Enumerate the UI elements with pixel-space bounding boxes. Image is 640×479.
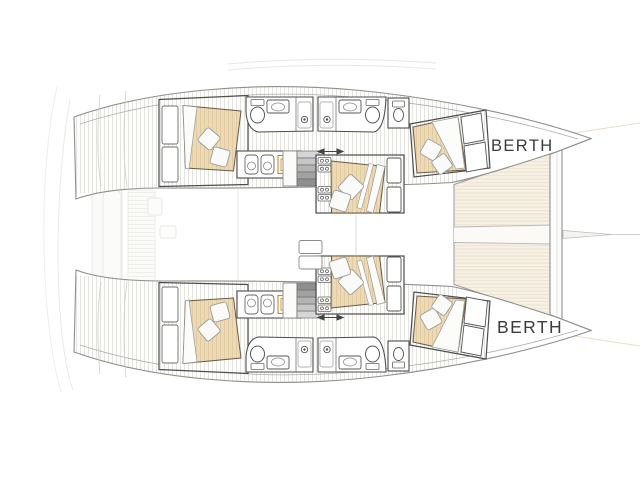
mid-cabin bbox=[316, 155, 404, 213]
companionway-step-2 bbox=[299, 256, 322, 269]
boom-line-2 bbox=[228, 65, 436, 70]
companionway-step-1 bbox=[299, 241, 322, 254]
berth-label-port: BERTH bbox=[491, 137, 554, 155]
rig-line-starboard bbox=[574, 336, 640, 346]
shower-drain-dot bbox=[303, 118, 305, 120]
shelf-drawer-2 bbox=[318, 166, 331, 173]
cockpit-table bbox=[148, 198, 162, 215]
cockpit-seat bbox=[160, 226, 176, 238]
staircase bbox=[283, 151, 319, 186]
forward-cabin-side-rect-2 bbox=[464, 142, 488, 172]
shelf-drawer-4 bbox=[318, 195, 331, 202]
bowsprit bbox=[563, 231, 612, 239]
forward-heads bbox=[318, 97, 386, 132]
toilet-icon bbox=[366, 107, 380, 123]
aft-cabin-bench-1 bbox=[162, 106, 178, 144]
aft-cabin-pillow-2 bbox=[210, 147, 231, 168]
stern-platform-inner bbox=[58, 99, 73, 390]
aft-cabin bbox=[159, 96, 248, 187]
companionway-steps bbox=[299, 241, 322, 270]
toilet-tank-icon bbox=[366, 100, 379, 106]
mid-cabin-side-rect-1 bbox=[387, 158, 401, 183]
toilet-icon bbox=[394, 109, 404, 122]
forward-wc-room bbox=[388, 98, 409, 128]
floor-plan-canvas: BERTH BERTH bbox=[0, 0, 640, 479]
shower-drain-dot bbox=[326, 118, 328, 120]
catamaran-floor-plan: BERTH BERTH bbox=[0, 0, 640, 479]
shelf-drawer-3 bbox=[318, 187, 331, 194]
forward-cabin-side-rect-1 bbox=[461, 113, 484, 144]
shelf-drawer-1 bbox=[318, 158, 331, 165]
toilet-icon bbox=[251, 107, 265, 123]
toilet-tank-icon bbox=[393, 101, 405, 107]
rig-line-port bbox=[574, 123, 640, 133]
mid-cabin-side-rect-2 bbox=[387, 187, 401, 212]
stair-landing bbox=[283, 151, 297, 186]
toilet-tank-icon bbox=[251, 100, 264, 106]
berth-label-starboard: BERTH bbox=[497, 317, 563, 337]
forward-crossbeam bbox=[550, 146, 562, 323]
galley-sink-2 bbox=[261, 155, 274, 174]
cockpit-bench bbox=[103, 189, 121, 287]
galley-sink-1 bbox=[245, 155, 258, 174]
aft-cabin-bench-2 bbox=[162, 147, 178, 182]
boom-line-1 bbox=[228, 59, 436, 64]
aft-heads bbox=[246, 97, 313, 132]
